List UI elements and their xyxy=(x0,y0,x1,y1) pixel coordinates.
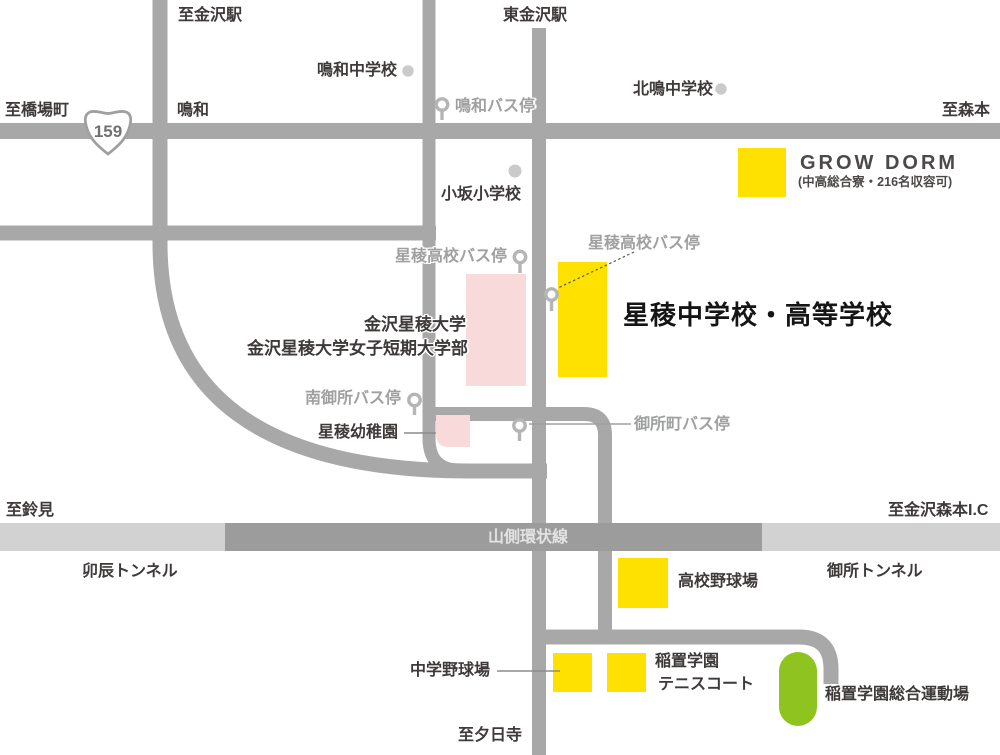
label-university-line1: 金沢星稜大学 xyxy=(246,316,466,335)
label-grow-dorm-note: (中高総合寮・216名収容可) xyxy=(798,176,952,190)
label-university-line2: 金沢星稜大学女子短期大学部 xyxy=(246,340,468,359)
label-higashi-kanazawa-station: 東金沢駅 xyxy=(503,7,567,25)
seiryo-school-building xyxy=(558,262,607,377)
label-seiryo-bus-stop-west: 星稜高校バス停 xyxy=(395,248,507,266)
access-map: 159 至金沢駅 東金沢駅 鳴和中学校 北鳴中学校 至橋場町 鳴和 至森本 鳴和… xyxy=(0,0,1000,755)
label-to-hashibacho: 至橋場町 xyxy=(5,102,69,120)
label-udatsu-tunnel: 卯辰トンネル xyxy=(82,563,178,581)
label-naruwa-jhs: 鳴和中学校 xyxy=(317,62,397,80)
label-seiryo-bus-stop-east: 星稜高校バス停 xyxy=(588,235,700,253)
naruwa-bus-stop-icon xyxy=(436,99,447,120)
kosaka-es-dot xyxy=(509,165,522,178)
kitanaru-jhs-dot xyxy=(715,83,726,94)
route-159-shield-number: 159 xyxy=(94,122,122,141)
jhs-baseball-field-building xyxy=(553,653,592,692)
route-159-shield: 159 xyxy=(85,111,130,154)
minami-gosho-bus-stop-icon xyxy=(409,394,420,415)
label-naruwa-area: 鳴和 xyxy=(177,102,209,120)
label-inaoki-tennis-line2: テニスコート xyxy=(658,676,754,694)
label-goshomachi-bus-stop: 御所町バス停 xyxy=(634,416,730,434)
label-gosho-tunnel: 御所トンネル xyxy=(827,563,923,581)
label-kosaka-es: 小坂小学校 xyxy=(441,186,521,204)
grow-dorm-building xyxy=(738,148,786,197)
label-to-kanazawa-morimoto-ic: 至金沢森本I.C xyxy=(888,502,988,520)
label-yamagawa-ring-road: 山側環状線 xyxy=(488,529,568,547)
label-kindergarten: 星稜幼稚園 xyxy=(318,424,398,442)
naruwa-jhs-dot xyxy=(402,65,413,76)
seiryo-bus-stop-west-icon xyxy=(514,251,525,273)
university-building xyxy=(466,274,526,386)
label-to-morimoto: 至森本 xyxy=(942,102,990,120)
label-seiryo-school-title: 星稜中学校・高等学校 xyxy=(623,301,893,330)
kindergarten-building xyxy=(436,415,470,447)
label-inaoki-tennis-line1: 稲置学園 xyxy=(655,653,719,671)
goshomachi-bus-stop-icon xyxy=(514,420,525,441)
label-to-kanazawa-station: 至金沢駅 xyxy=(178,7,242,25)
label-to-yuhidera: 至夕日寺 xyxy=(458,727,522,745)
label-grow-dorm: GROW DORM xyxy=(800,152,958,174)
tennis-court-building xyxy=(607,653,646,692)
label-to-suzumi: 至鈴見 xyxy=(6,502,54,520)
label-kitanaru-jhs: 北鳴中学校 xyxy=(633,81,713,99)
hs-baseball-field-building xyxy=(618,558,668,608)
label-jhs-baseball-field: 中学野球場 xyxy=(410,662,490,680)
label-inaoki-sports-ground: 稲置学園総合運動場 xyxy=(825,686,969,704)
label-minami-gosho-bus-stop: 南御所バス停 xyxy=(305,390,401,408)
seiryo-bus-stop-east-icon xyxy=(546,289,557,311)
label-hs-baseball-field: 高校野球場 xyxy=(678,573,758,591)
sports-ground-building xyxy=(779,652,817,726)
label-naruwa-bus-stop: 鳴和バス停 xyxy=(455,98,535,116)
